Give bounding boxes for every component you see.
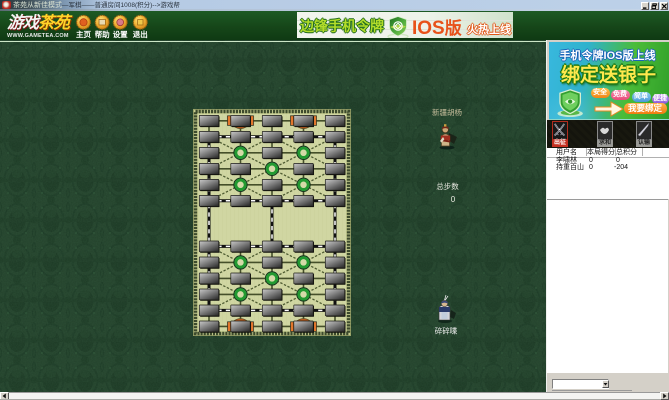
- svg-text:碎碎喋: 碎碎喋: [435, 326, 458, 336]
- svg-text:0: 0: [451, 195, 456, 204]
- svg-text:帮助: 帮助: [95, 29, 110, 39]
- svg-text:新疆胡杨: 新疆胡杨: [432, 107, 462, 117]
- svg-text:退出: 退出: [133, 29, 148, 39]
- svg-text:设置: 设置: [113, 29, 128, 39]
- svg-text:主页: 主页: [76, 29, 91, 39]
- svg-text:总步数: 总步数: [436, 181, 459, 191]
